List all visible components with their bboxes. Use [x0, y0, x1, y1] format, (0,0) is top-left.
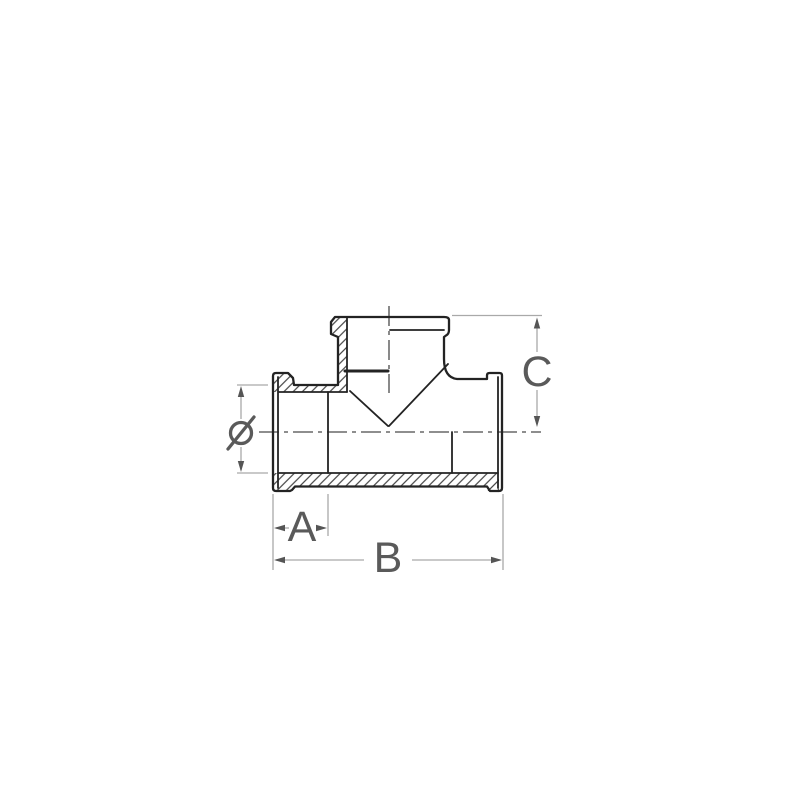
arrowhead-up-icon	[238, 386, 244, 397]
thread-cone-right-line	[389, 364, 448, 426]
hatch-left-arm-top-wall	[273, 373, 347, 392]
technical-drawing-canvas: A B C	[0, 0, 800, 800]
fitting-body	[273, 317, 502, 491]
thread-cone-left-line	[350, 391, 388, 426]
hatch-bottom-wall	[274, 473, 499, 491]
arrowhead-up-icon	[534, 318, 540, 329]
dim-label-c: C	[521, 348, 552, 396]
diameter-symbol	[228, 417, 254, 449]
fitting-outline	[273, 317, 502, 491]
arrowhead-down-icon	[238, 461, 244, 472]
dimension-diameter	[228, 385, 268, 473]
arrowhead-right-icon	[491, 557, 502, 563]
section-hatching	[273, 317, 499, 491]
diameter-extension-lines	[237, 385, 268, 473]
arrowhead-left-icon	[274, 525, 285, 531]
dim-label-a: A	[288, 503, 317, 551]
dim-label-b: B	[374, 534, 403, 582]
arrowhead-left-icon	[274, 557, 285, 563]
arrowhead-right-icon	[316, 525, 327, 531]
socket-inner-lines	[278, 317, 498, 488]
arrowhead-down-icon	[534, 416, 540, 427]
drawing-page: A B C	[0, 0, 800, 800]
